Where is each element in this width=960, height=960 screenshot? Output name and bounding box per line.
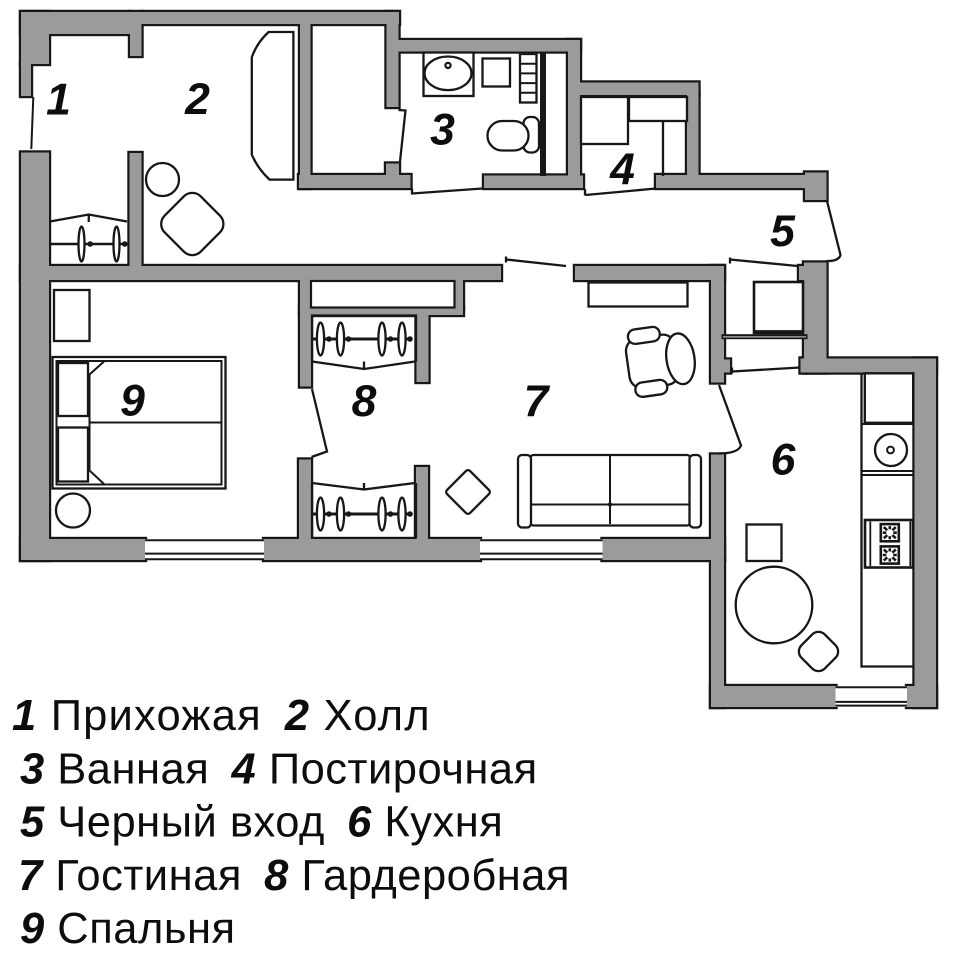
svg-text:7 Гостиная 8 Гардеробная: 7 Гостиная 8 Гардеробная [18, 852, 570, 900]
svg-text:5 Черный вход 6 Кухня: 5 Черный вход 6 Кухня [20, 799, 503, 847]
svg-text:3 Ванная 4 Постирочная: 3 Ванная 4 Постирочная [20, 746, 538, 794]
svg-text:9 Спальня: 9 Спальня [20, 905, 236, 953]
svg-text:5: 5 [770, 207, 796, 256]
svg-text:9: 9 [120, 376, 145, 425]
svg-text:2: 2 [184, 75, 210, 124]
svg-text:3: 3 [430, 105, 455, 154]
svg-text:1: 1 [46, 75, 71, 124]
svg-text:8: 8 [352, 377, 377, 426]
svg-text:6: 6 [771, 435, 796, 484]
svg-text:4: 4 [609, 145, 635, 194]
svg-text:7: 7 [524, 377, 551, 426]
svg-text:1 Прихожая 2 Холл: 1 Прихожая 2 Холл [12, 692, 431, 740]
